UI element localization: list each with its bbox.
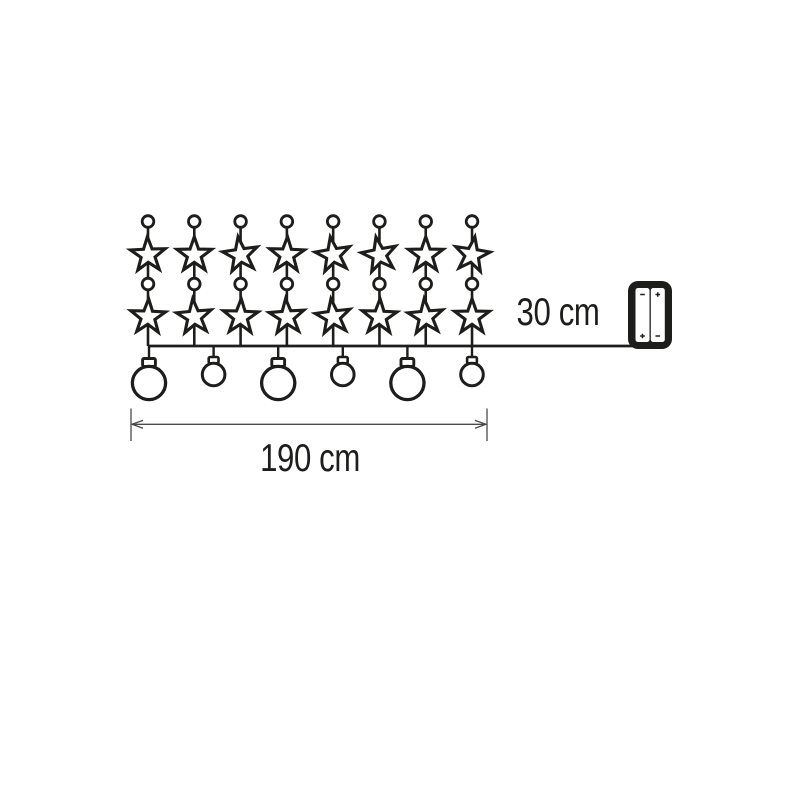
lead-length-label: 30 cm	[517, 291, 600, 334]
battery-box	[628, 281, 672, 349]
bulb-globe-icon	[202, 363, 225, 386]
connector-bead-icon	[420, 216, 432, 228]
connector-bead-icon	[142, 278, 154, 290]
bulb-globe-icon	[332, 363, 355, 386]
connector-bead-icon	[420, 278, 432, 290]
connector-bead-icon	[188, 278, 200, 290]
bulb-globe-icon	[132, 366, 165, 399]
light-chain-diagram: 30 cm 190 cm	[0, 0, 800, 800]
connector-bead-icon	[327, 216, 339, 228]
strand	[268, 216, 305, 346]
connector-bead-icon	[281, 216, 293, 228]
polarity-mark-bottom	[656, 335, 661, 337]
large-bulb	[262, 346, 295, 400]
strand	[359, 216, 399, 346]
small-bulb	[202, 346, 225, 386]
connector-bead-icon	[466, 278, 478, 290]
small-bulb	[332, 346, 355, 386]
connector-bead-icon	[281, 278, 293, 290]
connector-bead-icon	[466, 216, 478, 228]
connector-bead-icon	[188, 216, 200, 228]
diagram-canvas: 30 cm 190 cm	[0, 0, 800, 800]
strand	[453, 216, 493, 346]
bulb-globe-icon	[262, 366, 295, 399]
strand	[407, 216, 445, 346]
large-bulb	[132, 346, 165, 400]
small-bulb	[461, 346, 484, 386]
connector-bead-icon	[374, 216, 386, 228]
strand-group	[130, 216, 492, 346]
connector-bead-icon	[142, 216, 154, 228]
strand	[221, 216, 260, 346]
connector-bead-icon	[374, 278, 386, 290]
connector-bead-icon	[235, 278, 247, 290]
battery-box-body	[628, 281, 672, 349]
strand	[130, 216, 166, 346]
large-bulb	[391, 346, 424, 400]
ball-group	[132, 346, 483, 400]
connector-bead-icon	[327, 278, 339, 290]
strand	[313, 216, 353, 346]
polarity-mark-top	[640, 294, 645, 296]
strand	[175, 216, 213, 346]
connector-bead-icon	[235, 216, 247, 228]
bulb-globe-icon	[461, 363, 484, 386]
bulb-globe-icon	[391, 366, 424, 399]
chain-length-label: 190 cm	[260, 437, 360, 480]
